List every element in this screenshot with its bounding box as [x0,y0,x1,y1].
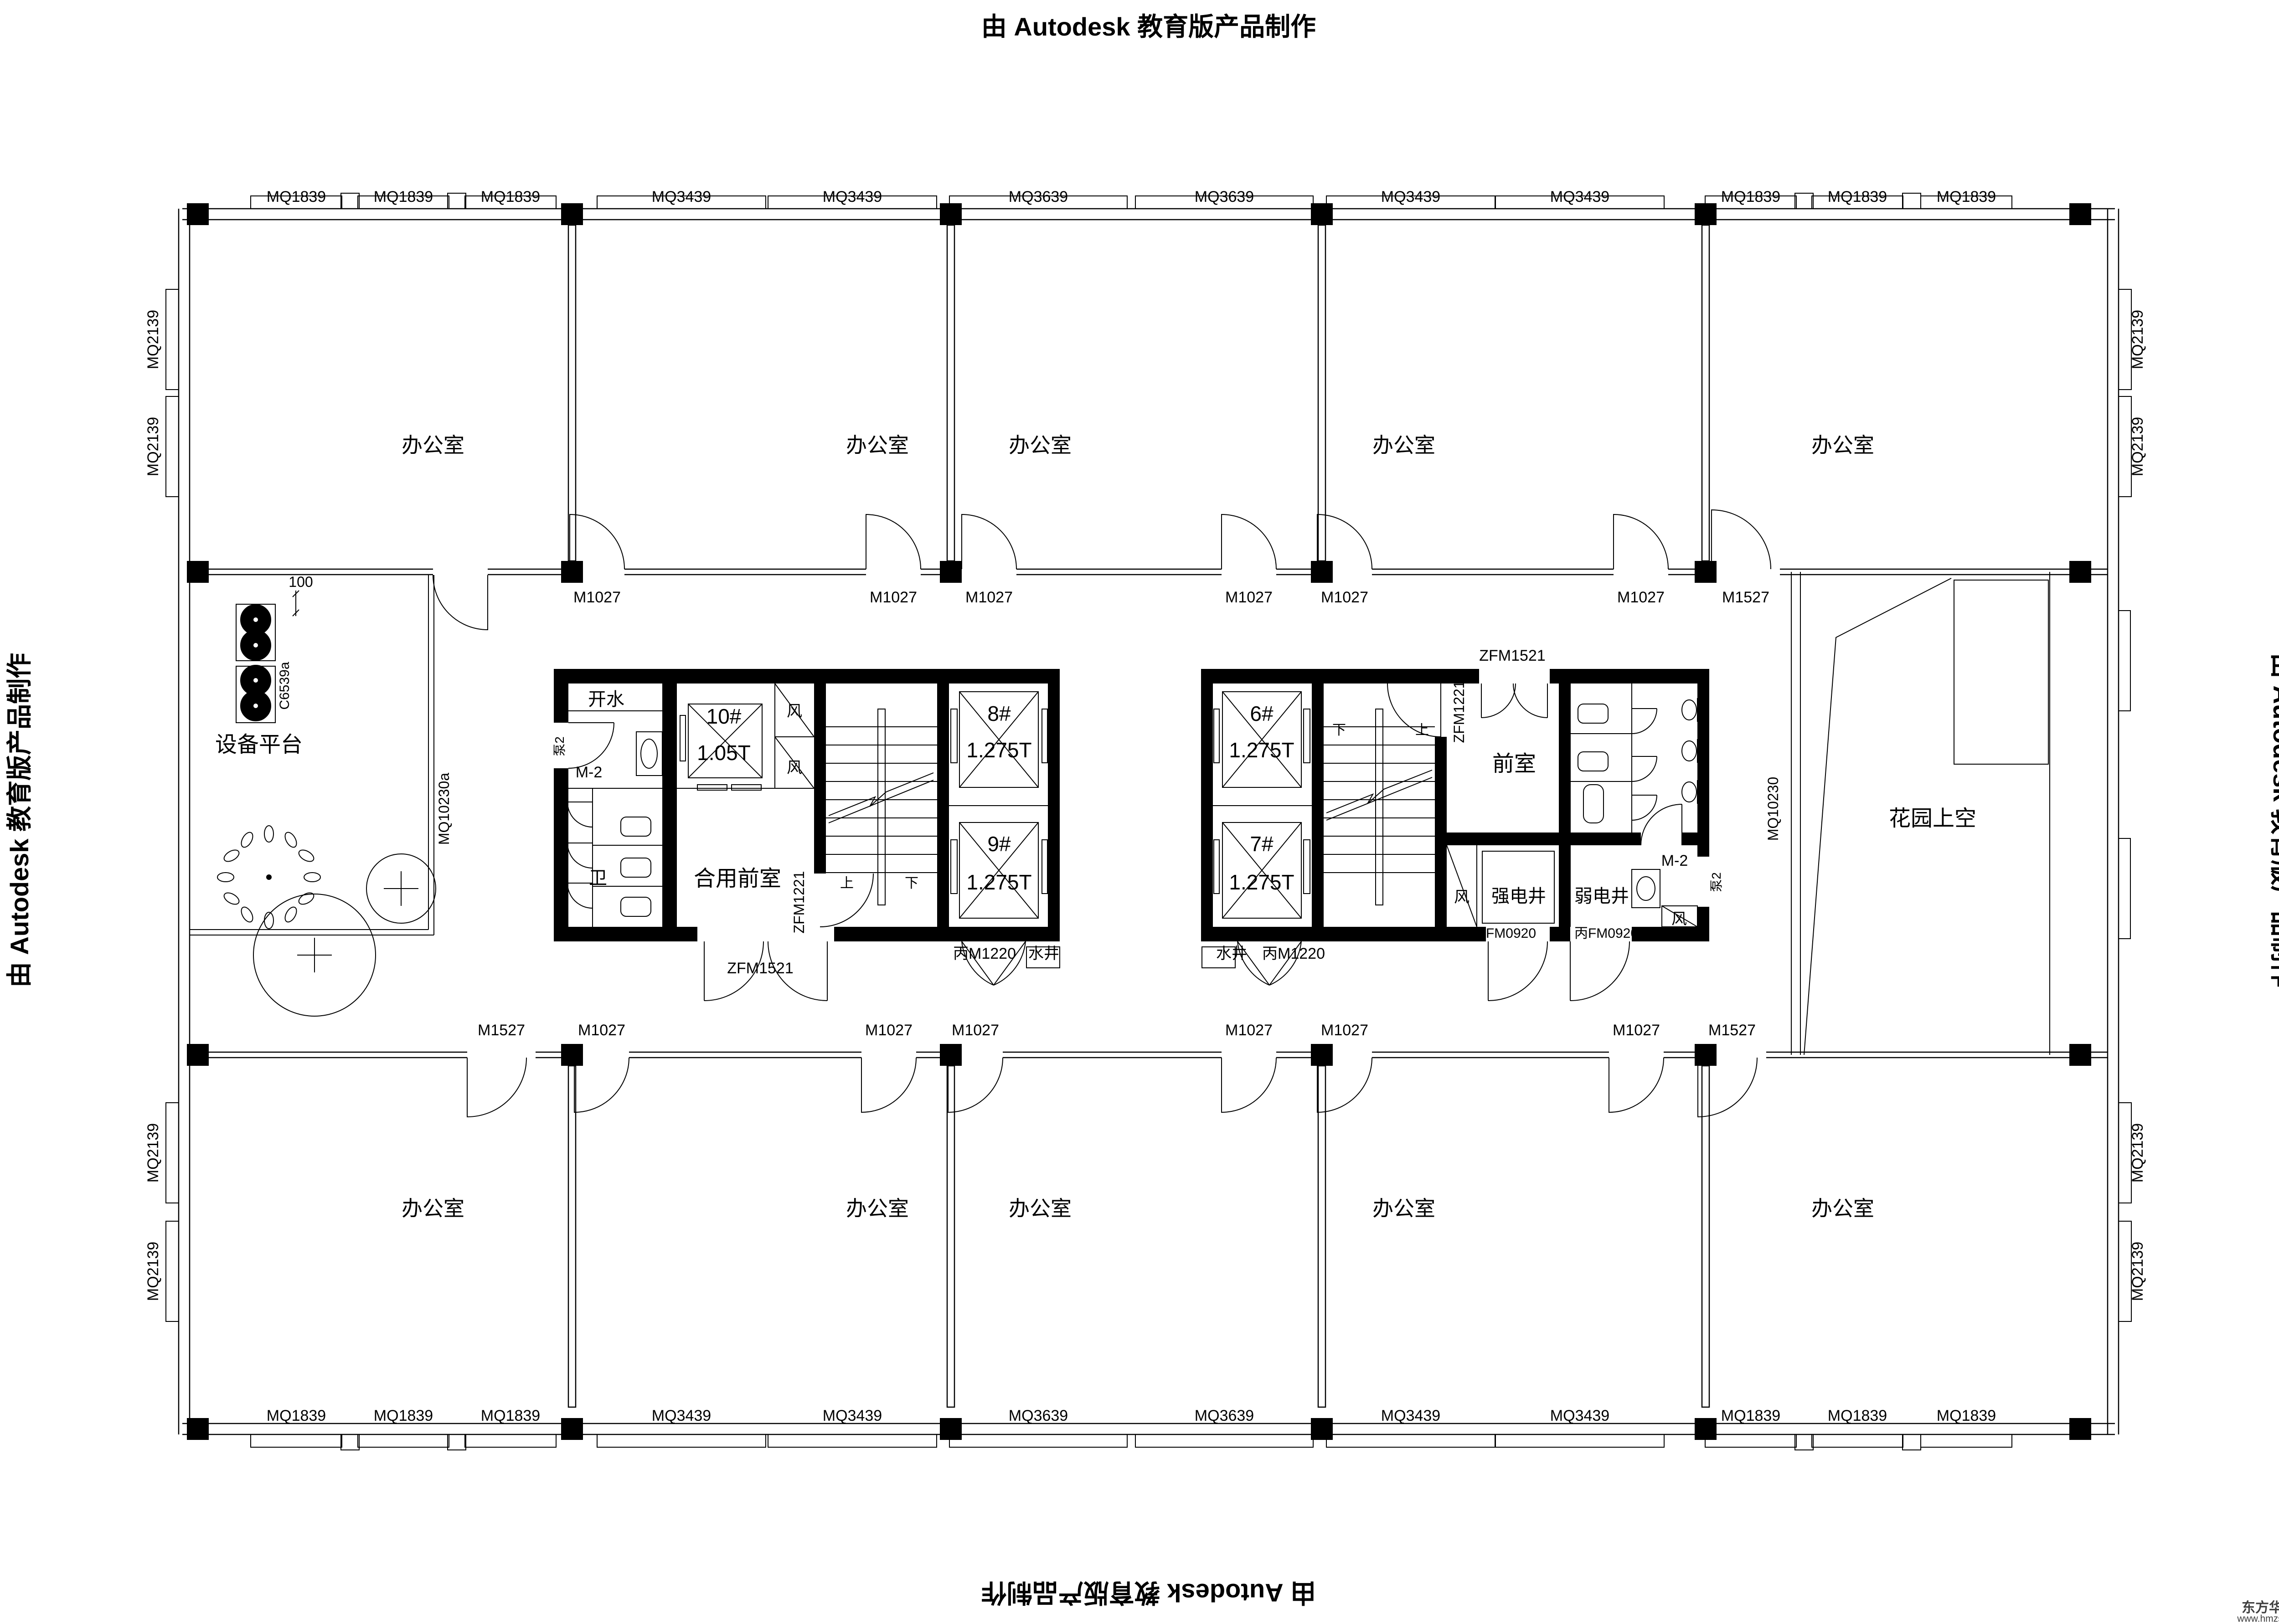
site-url: www.hmzs.net [2237,1614,2279,1624]
door-label: M1027 [865,1022,913,1039]
window-frames [166,193,2131,1450]
door-label: M1027 [870,589,917,606]
floor-plan-page: 由 Autodesk 教育版产品制作 由 Autodesk 教育版产品制作 由 … [0,0,2279,1624]
shaft-label-wind: 风 [1454,889,1469,906]
window-label: MQ2139 [2129,1123,2146,1182]
window-label: MQ2139 [2129,417,2146,476]
elevator-7-load: 1.275T [1229,870,1294,894]
door-label: M1027 [1225,1022,1273,1039]
door-label-m2: M-2 [1661,852,1688,869]
door-label-bfm0920: 丙FM0920 [1472,926,1536,941]
elevator-10-no: 10# [706,704,742,728]
door-label-bfm0920: 丙FM0920 [1574,926,1638,941]
labels: 由 Autodesk 教育版产品制作 由 Autodesk 教育版产品制作 由 … [5,12,2279,1624]
room-label-office: 办公室 [1009,433,1072,457]
corridor-walls [190,569,2108,1058]
door-label: M1527 [1708,1022,1756,1039]
structural-columns [187,203,2091,1440]
room-label-office: 办公室 [846,1197,909,1220]
room-label-office: 办公室 [1811,433,1874,457]
elevator-10-load: 1.05T [697,741,751,765]
shaft-label-strong-elec: 强电井 [1491,886,1546,906]
room-label-office: 办公室 [1009,1197,1072,1220]
elevator-8-no: 8# [987,702,1011,725]
elevator-6-load: 1.275T [1229,738,1294,762]
tag-c6539a: C6539a [277,662,292,709]
shaft-label-water: 水井 [1216,945,1247,962]
shaft-label-wind: 风 [1671,910,1687,928]
room-label-office: 办公室 [402,1197,464,1220]
window-label: MQ3439 [652,188,711,206]
window-label: MQ1839 [267,188,326,206]
door-label: M1027 [573,589,621,606]
window-label: MQ1839 [1828,1407,1887,1424]
window-label: MQ1839 [1721,188,1780,206]
room-label-garden-void: 花园上空 [1889,807,1976,831]
room-label-office: 办公室 [846,433,909,457]
room-label-office: 办公室 [1372,433,1435,457]
window-label: MQ3639 [1009,188,1068,206]
watermark-right: 由 Autodesk 教育版产品制作 [2268,653,2279,987]
window-label: MQ3439 [823,1407,882,1424]
door-label-zfm1521: ZFM1521 [727,960,794,977]
site-logo: 东方华美 [2242,1600,2279,1615]
elevator-8-load: 1.275T [966,738,1031,762]
door-label-zfm1521: ZFM1521 [1479,647,1546,664]
room-label-office: 办公室 [1372,1197,1435,1220]
door-label-bm1220: 丙M1220 [1262,945,1325,962]
room-label-front-room: 前室 [1492,752,1536,776]
window-label: MQ3439 [1550,1407,1609,1424]
floor-plan-canvas: 由 Autodesk 教育版产品制作 由 Autodesk 教育版产品制作 由 … [0,0,2279,1624]
dim-label-100: 100 [289,574,313,590]
shaft-label-water: 水井 [1028,945,1059,962]
elevator-7-no: 7# [1250,832,1274,856]
elevator-9-no: 9# [987,832,1011,856]
door-label-m2: M-2 [576,764,603,781]
room-label-office: 办公室 [1811,1197,1874,1220]
door-label: M1027 [952,1022,999,1039]
door-label: M1027 [965,589,1013,606]
door-label-zfm1221: ZFM1221 [791,871,807,934]
window-label: MQ1839 [374,1407,433,1424]
room-label-office: 办公室 [402,433,464,457]
shaft-label-wind: 风 [787,703,802,720]
window-label: MQ2139 [144,1123,162,1182]
window-label: MQ3439 [1381,1407,1440,1424]
window-label: MQ1839 [1721,1407,1780,1424]
door-label: M1027 [1321,1022,1368,1039]
window-label: MQ1839 [267,1407,326,1424]
window-label: MQ1839 [1937,1407,1996,1424]
window-label: MQ2139 [144,310,162,369]
watermark-top: 由 Autodesk 教育版产品制作 [981,12,1316,41]
window-label: MQ1839 [481,1407,540,1424]
perimeter-walls [179,209,2119,1434]
door-label: M1027 [1613,1022,1660,1039]
window-label: MQ2139 [144,417,162,476]
window-label: MQ3639 [1009,1407,1068,1424]
tag-pump2: 泵2 [552,736,567,756]
room-label-equipment-platform: 设备平台 [215,733,303,757]
door-label: M1027 [1321,589,1368,606]
window-label: MQ3439 [823,188,882,206]
door-label-bm1220: 丙M1220 [953,945,1016,962]
stair-label-up: 上 [1415,723,1429,738]
elevator-6-no: 6# [1250,702,1274,725]
window-label: MQ1839 [1828,188,1887,206]
window-label: MQ3439 [652,1407,711,1424]
window-label: MQ2139 [2129,1242,2146,1301]
shaft-label-wind: 风 [787,759,802,776]
room-label-hot-water: 开水 [588,689,624,709]
room-label-shared-front: 合用前室 [694,867,781,891]
door-label: M1527 [478,1022,525,1039]
window-label: MQ3639 [1195,1407,1254,1424]
curtain-wall-label: MQ10230 [1765,777,1781,841]
tag-pump2: 泵2 [1709,872,1723,892]
door-label: M1527 [1722,589,1769,606]
window-label: MQ3439 [1381,188,1440,206]
room-label-toilet: 卫 [589,868,607,888]
door-label-zfm1221: ZFM1221 [1451,681,1467,743]
watermark-left: 由 Autodesk 教育版产品制作 [5,653,34,987]
curtain-wall-label: MQ10230a [436,773,452,845]
window-label: MQ2139 [2129,310,2146,369]
landscape-symbols [217,826,436,1016]
stair-label-down: 下 [905,876,918,891]
window-label: MQ1839 [374,188,433,206]
watermark-bottom: 由 Autodesk 教育版产品制作 [981,1578,1316,1607]
window-label: MQ1839 [1937,188,1996,206]
window-label: MQ3639 [1195,188,1254,206]
window-label: MQ2139 [144,1242,162,1301]
stair-label-down: 下 [1332,723,1346,738]
elevator-9-load: 1.275T [966,870,1031,894]
window-label: MQ1839 [481,188,540,206]
window-label: MQ3439 [1550,188,1609,206]
door-label: M1027 [578,1022,625,1039]
door-label: M1027 [1617,589,1665,606]
door-label: M1027 [1225,589,1273,606]
shaft-label-weak-elec: 弱电井 [1574,886,1629,906]
stair-label-up: 上 [840,876,854,891]
